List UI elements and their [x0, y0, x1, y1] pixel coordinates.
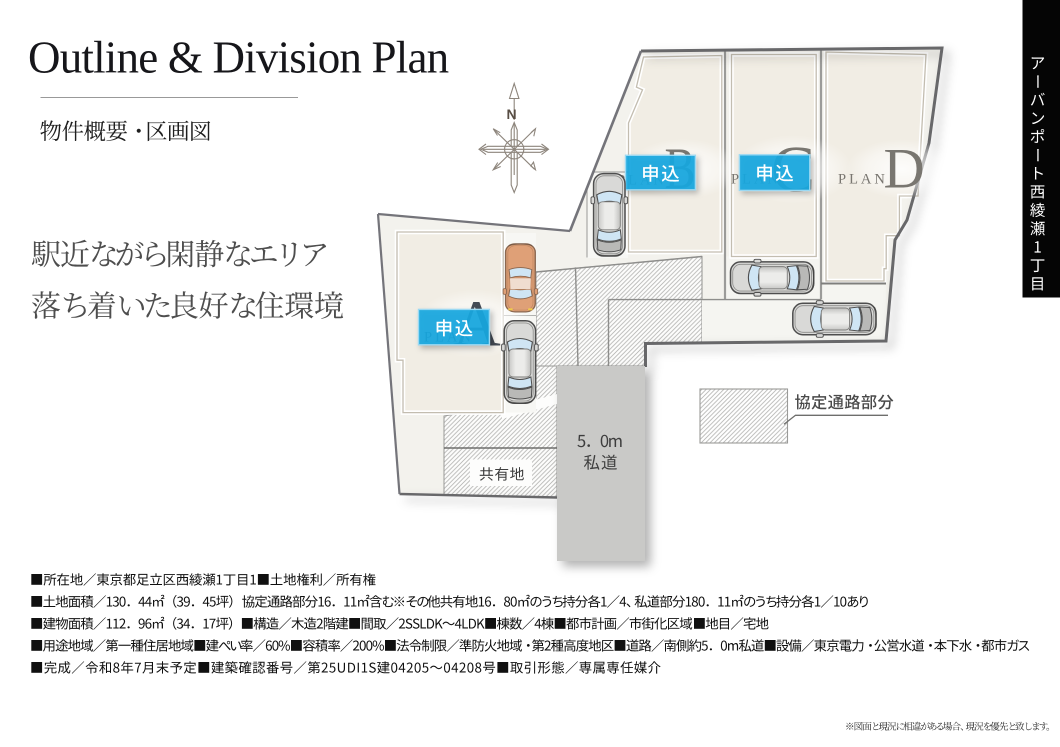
svg-text:PLAN: PLAN: [838, 172, 888, 188]
svg-text:Outline & Division Plan: Outline & Division Plan: [28, 33, 449, 83]
svg-text:N: N: [507, 106, 517, 122]
svg-text:D: D: [884, 138, 925, 201]
